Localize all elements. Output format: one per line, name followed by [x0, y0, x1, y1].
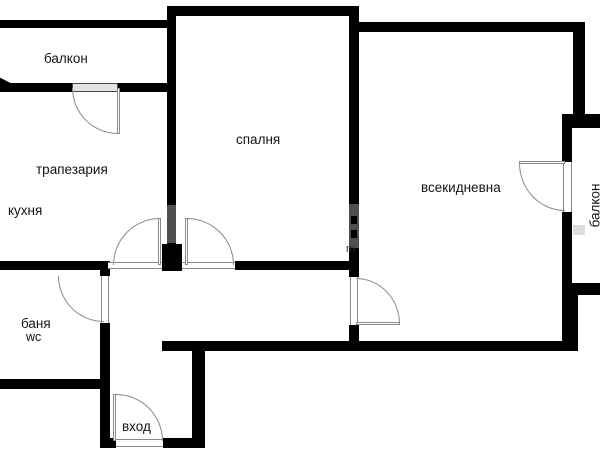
room-label-dining: трапезария — [36, 162, 108, 177]
wall-t-junction — [162, 244, 182, 271]
wall-living-top — [353, 22, 583, 32]
room-label-wc: wc — [26, 330, 41, 344]
wall-vestibule-right — [192, 347, 205, 448]
room-label-bathroom: баня — [21, 316, 51, 331]
wall-entry-bottom-right — [163, 438, 205, 448]
living-balcony-door-arc — [519, 163, 565, 211]
wall-hall-bottom — [162, 341, 578, 351]
balcony-top-door-arc — [72, 88, 118, 134]
bedroom-door-arc — [187, 218, 234, 265]
wall-bedroom-top — [167, 6, 359, 16]
wall-balcony-left-upper-jamb — [562, 126, 572, 162]
bathroom-door-arc — [58, 276, 104, 322]
wall-bath-bottom — [0, 379, 104, 389]
room-label-balcony-top: балкон — [44, 51, 88, 66]
room-label-living: всекидневна — [421, 180, 501, 195]
room-label-balcony-right: балкон — [588, 175, 600, 237]
wall-balcony-right-bottom — [570, 283, 600, 295]
watermark-patch — [167, 205, 176, 243]
wall-bedroom-bottom — [235, 261, 350, 270]
wall-balcony-bottom-right — [117, 83, 167, 92]
room-label-kitchen: кухня — [8, 203, 42, 218]
floor-plan: m балкон трапезария кухня спалня всекидн… — [0, 0, 600, 450]
wall-balcony-left-lower — [562, 212, 572, 287]
wall-top-left — [0, 20, 170, 28]
wall-balcony-edge-diagonal — [0, 76, 14, 92]
watermark-patch — [349, 204, 359, 248]
room-label-bedroom: спалня — [236, 132, 280, 147]
watermark-dot — [351, 230, 357, 238]
wall-kitchen-bottom — [0, 261, 108, 270]
hall-living-door-arc — [356, 278, 400, 324]
wall-living-right-lower — [562, 287, 578, 343]
watermark-letter: m — [346, 243, 355, 255]
watermark-smudge — [573, 225, 585, 235]
room-label-entry: вход — [122, 419, 151, 434]
kitchen-door-arc — [113, 218, 160, 265]
watermark-dot — [351, 216, 357, 224]
wall-living-right-upper — [573, 22, 585, 122]
